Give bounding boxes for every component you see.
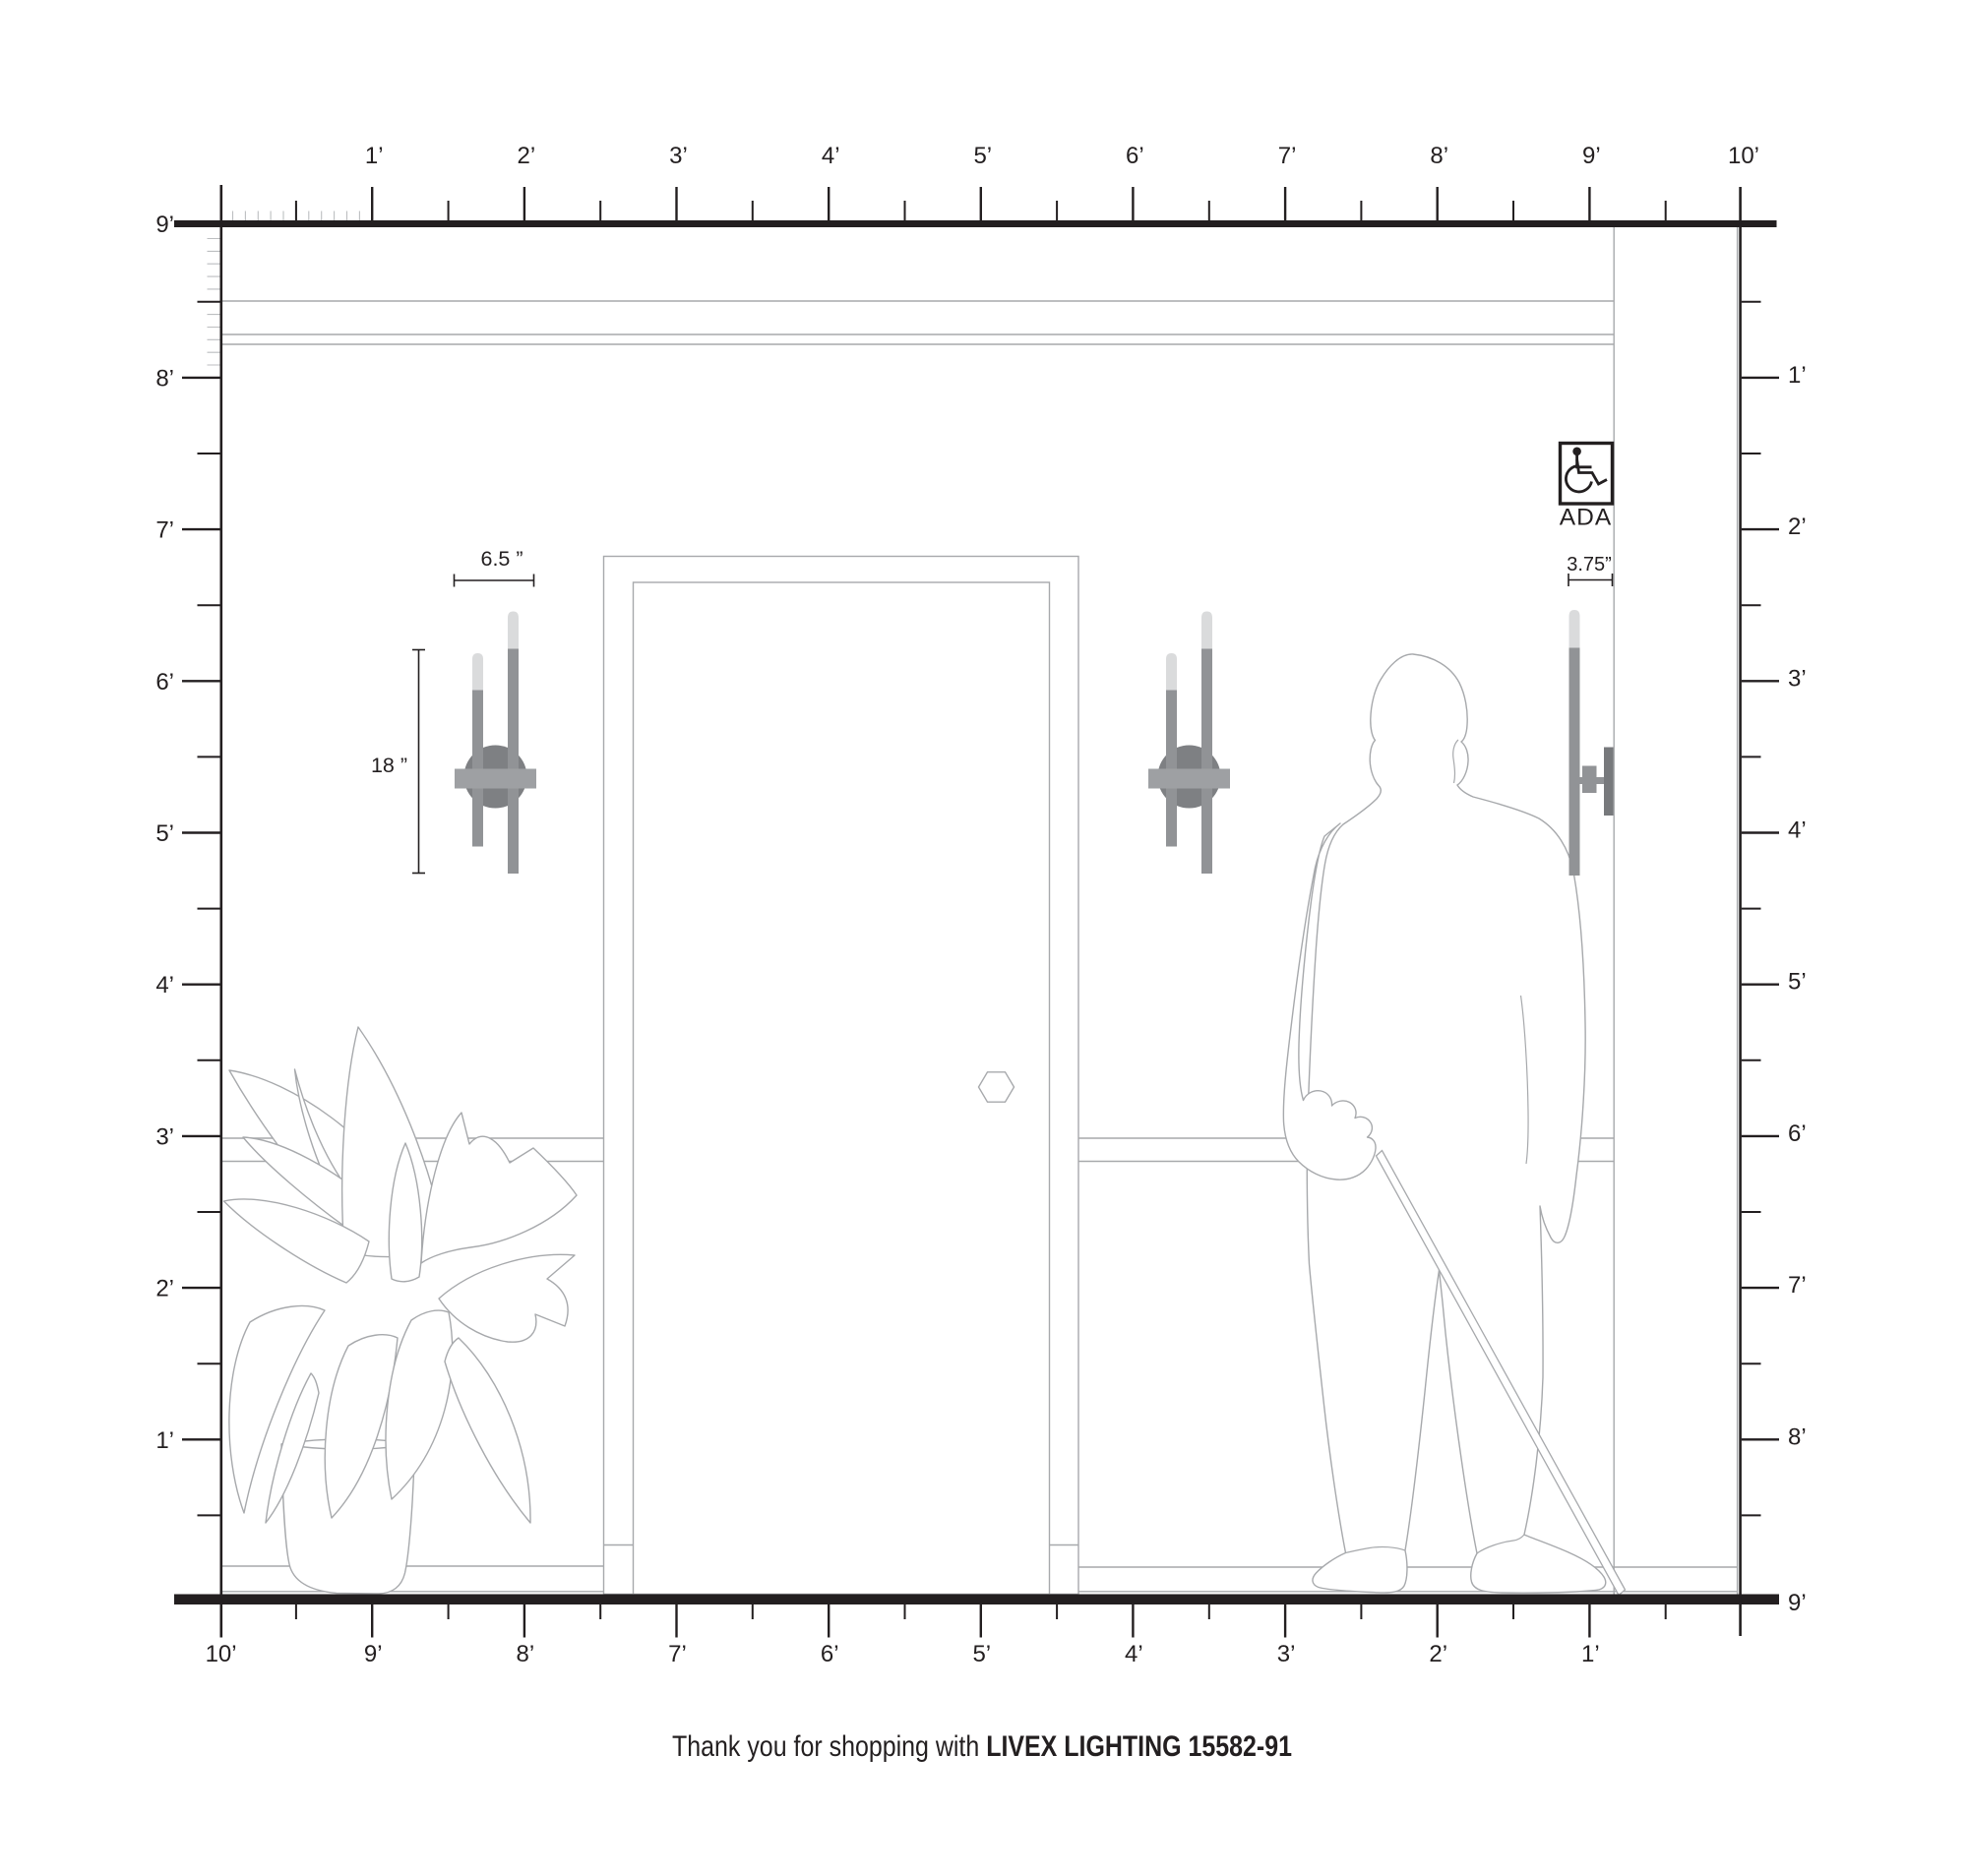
svg-text:8’: 8’ xyxy=(517,1641,535,1667)
svg-text:7’: 7’ xyxy=(1278,143,1297,169)
svg-text:1’: 1’ xyxy=(155,1427,174,1454)
svg-text:3’: 3’ xyxy=(1277,1641,1296,1667)
svg-text:8’: 8’ xyxy=(1788,1423,1807,1450)
svg-text:5’: 5’ xyxy=(155,820,174,847)
svg-text:8’: 8’ xyxy=(155,365,174,392)
svg-text:4’: 4’ xyxy=(1125,1641,1143,1667)
svg-text:10’: 10’ xyxy=(1728,143,1759,169)
svg-text:5’: 5’ xyxy=(1788,969,1807,996)
svg-text:1’: 1’ xyxy=(1788,362,1807,389)
svg-text:3’: 3’ xyxy=(155,1123,174,1150)
svg-text:2’: 2’ xyxy=(155,1276,174,1302)
svg-text:4’: 4’ xyxy=(1788,817,1807,844)
svg-text:6’: 6’ xyxy=(1788,1120,1807,1147)
svg-text:2’: 2’ xyxy=(1429,1641,1447,1667)
svg-text:6.5 ”: 6.5 ” xyxy=(480,547,523,571)
svg-text:7’: 7’ xyxy=(155,517,174,544)
svg-text:3.75”: 3.75” xyxy=(1567,554,1612,575)
svg-text:9’: 9’ xyxy=(155,212,174,238)
svg-text:2’: 2’ xyxy=(1788,514,1807,540)
svg-text:6’: 6’ xyxy=(1126,143,1144,169)
svg-text:8’: 8’ xyxy=(1430,143,1448,169)
svg-text:4’: 4’ xyxy=(822,143,840,169)
svg-text:4’: 4’ xyxy=(155,972,174,999)
svg-text:6’: 6’ xyxy=(155,669,174,696)
svg-text:Thank you for shopping with LI: Thank you for shopping with LIVEX LIGHTI… xyxy=(672,1730,1292,1763)
svg-text:7’: 7’ xyxy=(1788,1272,1807,1299)
svg-text:ADA: ADA xyxy=(1560,505,1612,531)
svg-text:18 ”: 18 ” xyxy=(371,754,407,777)
svg-text:6’: 6’ xyxy=(821,1641,839,1667)
svg-text:3’: 3’ xyxy=(669,143,688,169)
svg-text:1’: 1’ xyxy=(365,143,384,169)
svg-text:7’: 7’ xyxy=(668,1641,687,1667)
svg-text:1’: 1’ xyxy=(1581,1641,1600,1667)
svg-text:9’: 9’ xyxy=(1788,1590,1807,1616)
svg-text:5’: 5’ xyxy=(972,1641,991,1667)
svg-text:2’: 2’ xyxy=(518,143,536,169)
svg-text:3’: 3’ xyxy=(1788,665,1807,692)
svg-text:5’: 5’ xyxy=(973,143,992,169)
svg-text:9’: 9’ xyxy=(364,1641,383,1667)
svg-text:9’: 9’ xyxy=(1582,143,1601,169)
svg-text:10’: 10’ xyxy=(206,1641,237,1667)
